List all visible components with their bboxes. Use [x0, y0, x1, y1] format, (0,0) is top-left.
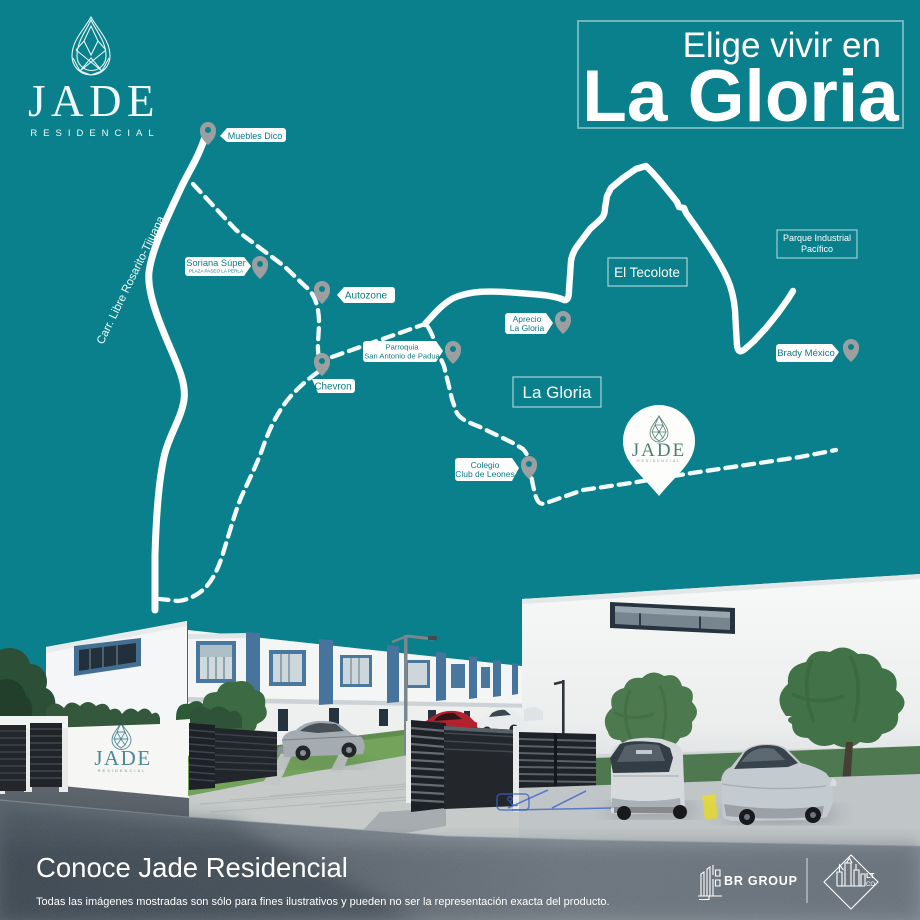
svg-text:RESIDENCIAL: RESIDENCIAL — [98, 768, 147, 773]
svg-text:RESIDENCIAL: RESIDENCIAL — [637, 459, 681, 463]
svg-text:Parque Industrial: Parque Industrial — [783, 233, 851, 243]
svg-text:Brady México: Brady México — [777, 348, 835, 359]
svg-text:El Tecolote: El Tecolote — [614, 265, 680, 280]
svg-text:JADE: JADE — [94, 746, 151, 770]
svg-text:Parroquia: Parroquia — [386, 343, 420, 352]
svg-text:JADE: JADE — [632, 440, 686, 461]
svg-text:Pacífico: Pacífico — [801, 244, 833, 254]
svg-text:Carr. Libre Rosarito-Tijuana: Carr. Libre Rosarito-Tijuana — [95, 214, 168, 346]
svg-text:Muebles Dico: Muebles Dico — [228, 131, 283, 141]
svg-text:Soriana Súper: Soriana Súper — [186, 258, 245, 268]
svg-text:Club de Leones: Club de Leones — [455, 469, 515, 479]
svg-text:Chevron: Chevron — [314, 382, 351, 393]
svg-text:PLAZA PASEO LA PERLA: PLAZA PASEO LA PERLA — [189, 269, 244, 274]
svg-text:San Antonio de Padua: San Antonio de Padua — [364, 352, 440, 361]
svg-text:BR GROUP: BR GROUP — [724, 874, 798, 888]
svg-text:Autozone: Autozone — [345, 291, 388, 302]
svg-text:LT: LT — [866, 871, 875, 880]
svg-text:La Gloria: La Gloria — [510, 323, 545, 333]
svg-text:La Gloria: La Gloria — [523, 383, 593, 402]
svg-text:CO: CO — [866, 882, 875, 888]
